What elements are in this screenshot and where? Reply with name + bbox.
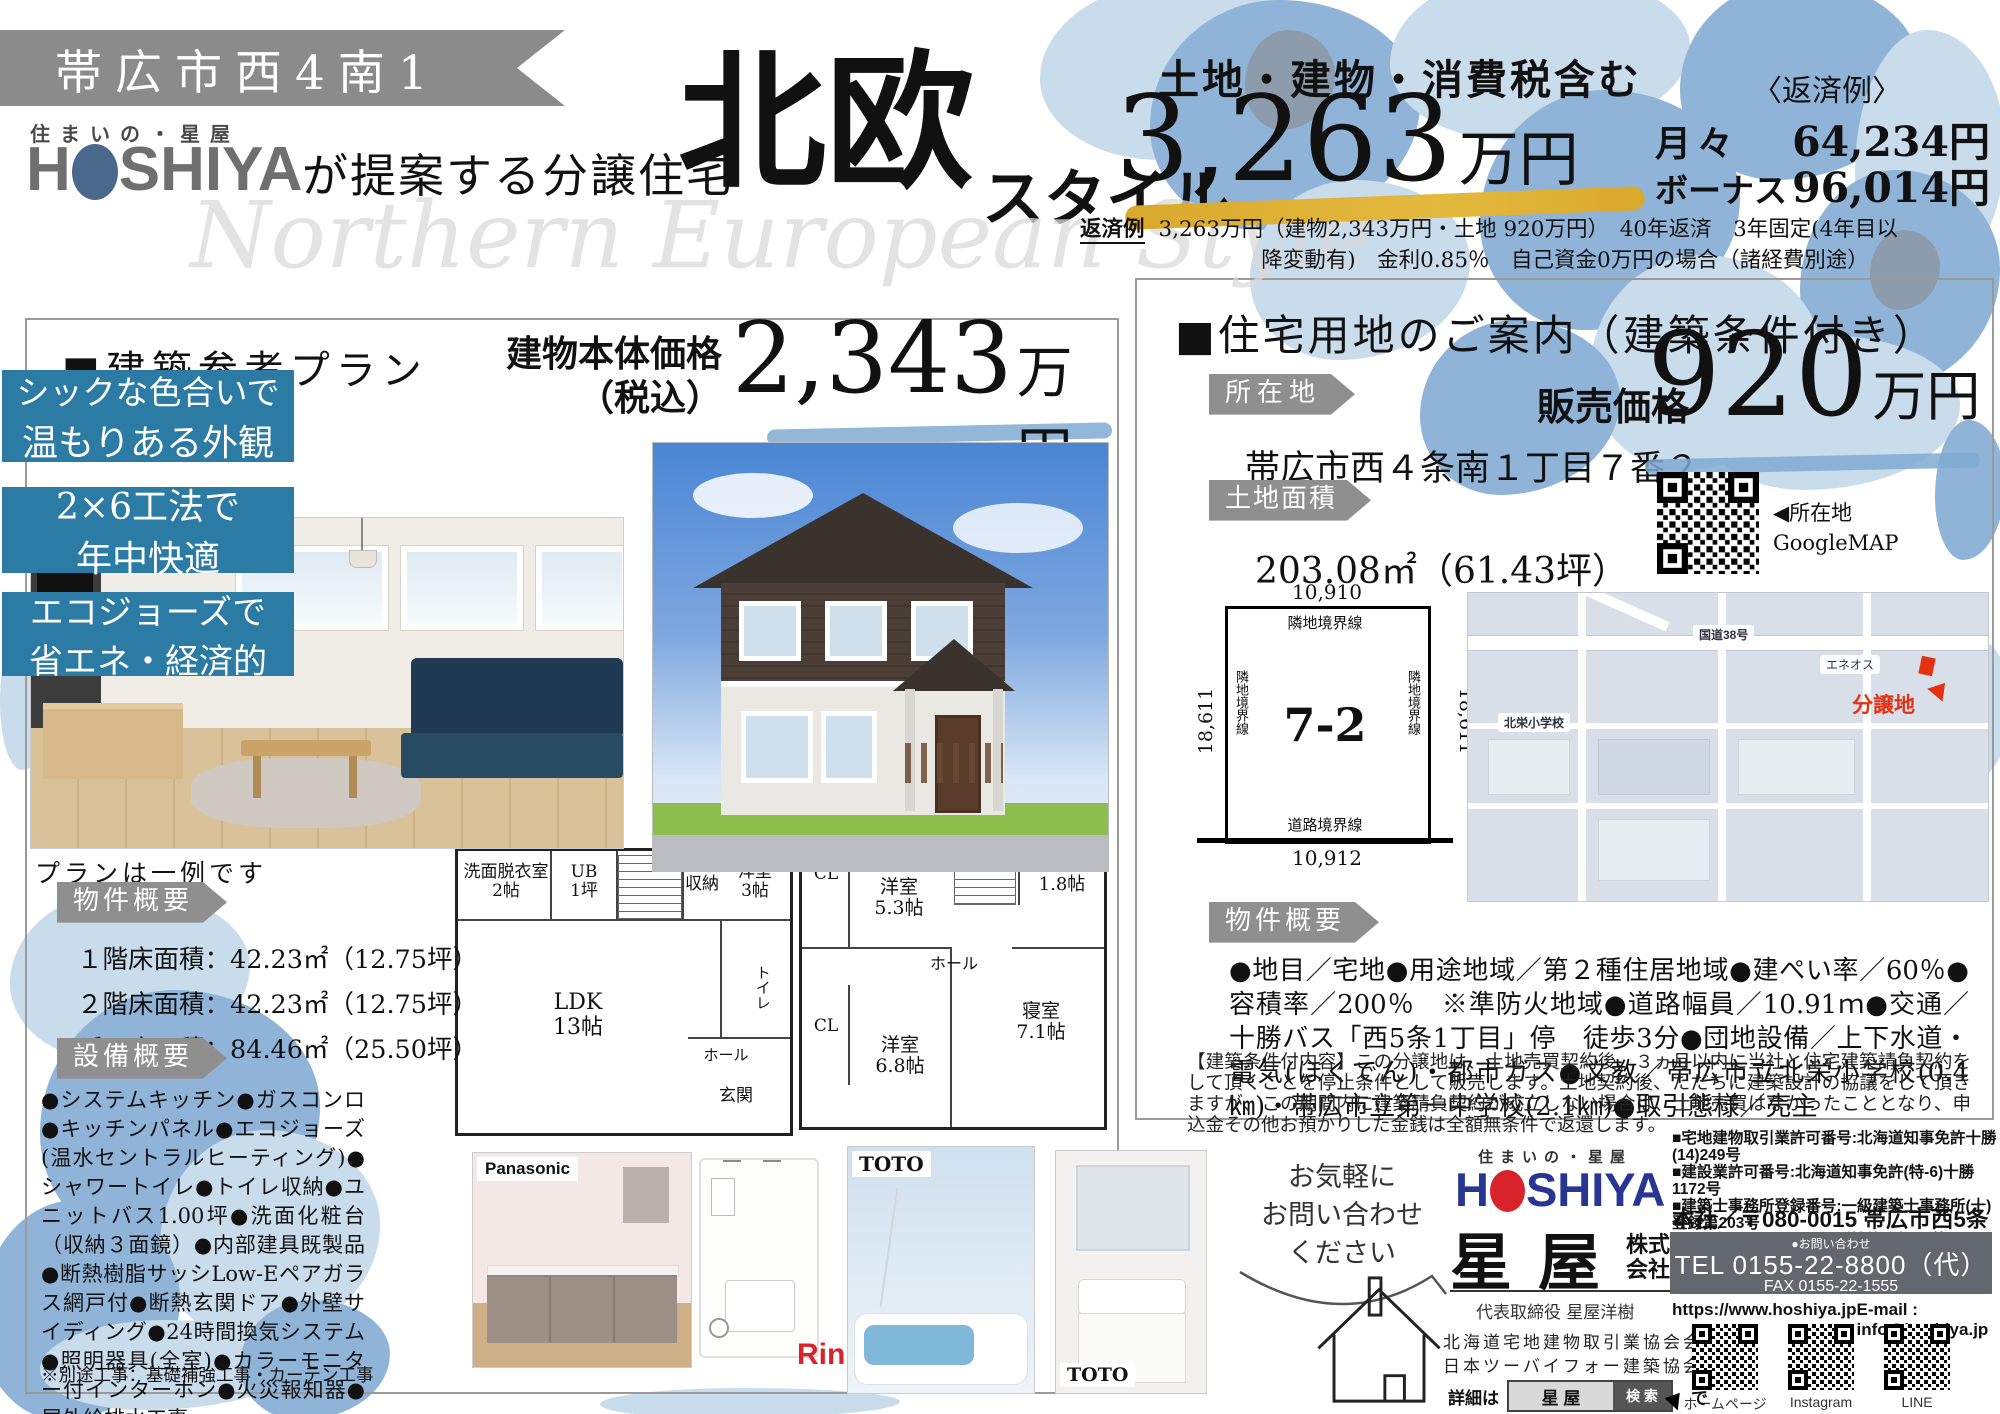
bath-shower-hose <box>880 1187 899 1306</box>
map-site-arrow-icon <box>1927 676 1953 701</box>
interior-table-leg <box>253 756 261 798</box>
lot-left-dim: 18,611 <box>1195 688 1217 754</box>
fp-wall <box>720 919 722 1039</box>
fp-wall <box>950 947 952 1127</box>
house-window <box>741 711 813 783</box>
feature-box-2: 2×6工法で 年中快適 <box>2 487 294 573</box>
map-road <box>1863 593 1871 901</box>
fp-room-label: 玄関 <box>706 1087 766 1106</box>
qr-homepage <box>1692 1324 1758 1390</box>
location-banner-text: 帯広市西4南1 <box>0 34 441 103</box>
floor-area-row: ２階床面積：42.23㎡（12.75坪） <box>77 983 478 1028</box>
style-title-main: 北欧 <box>678 48 974 196</box>
footer-logo-o-icon <box>1490 1170 1525 1212</box>
interior-pendant-shade <box>349 550 377 568</box>
boiler-hatch <box>725 1280 795 1332</box>
plan-panel: ■建築参考プラン 建物本体価格 （税込） 2,343 万円 シックな色合いで 温… <box>25 318 1119 1394</box>
interior-sofa <box>411 658 623 738</box>
fp-room-label: 洋室5.3帖 <box>854 877 944 920</box>
company-rule <box>1450 1290 1675 1292</box>
footer-logo-rest: SHIYA <box>1526 1162 1665 1217</box>
kitchen-cabinets <box>487 1275 677 1343</box>
license-line: ■宅地建物取引業許可番号:北海道知事免許十勝(14)249号 <box>1672 1130 2000 1164</box>
lot-number: 7-2 <box>1225 698 1425 752</box>
bonus-value: 96,014円 <box>1792 154 1990 214</box>
area-map: 国道38号 エネオス 北栄小学校 分譲地 <box>1467 592 1989 902</box>
lot-top-label: 隣地境界線 <box>1225 612 1425 633</box>
bath-brand-label: TOTO <box>852 1151 931 1177</box>
house-window <box>821 711 877 783</box>
hoshiya-logo-o-icon <box>72 144 118 200</box>
lot-road-label: 道路境界線 <box>1225 814 1425 835</box>
fp-wall <box>688 1037 790 1039</box>
cloud <box>693 473 813 518</box>
interior-table-leg <box>349 756 357 798</box>
feature-box-1: シックな色合いで 温もりある外観 <box>2 370 294 462</box>
company-name-row: 星屋 株式 会社 <box>1450 1212 1670 1302</box>
license-line: ■建設業許可番号:北海道知事免許(特-6)十勝1172号 <box>1672 1164 2000 1198</box>
search-bar: 星 屋 検 索 <box>1507 1380 1673 1412</box>
interior-table <box>241 740 371 756</box>
fp-room-label: トイレ <box>754 947 771 1027</box>
lot-road-line <box>1197 838 1453 843</box>
floorplan-1f: 洗面脱衣室2帖 UB1坪 収納 洋室3帖 LDK13帖 トイレ ホール 玄関 <box>455 848 793 1136</box>
sale-price-value: 920 <box>1647 308 1868 443</box>
qr-label-instagram: Instagram <box>1776 1394 1866 1410</box>
equipment-label: 設備概要 <box>57 1038 227 1079</box>
contact-label: ●お問い合わせ <box>1670 1232 1992 1252</box>
boiler-pipe <box>763 1158 781 1162</box>
building-conditions-text: 【建築条件付内容】この分譲地は、土地売買契約後、３ヵ月以内に当社と住宅建築請負契… <box>1187 1052 1971 1136</box>
fp-wall <box>1012 947 1104 949</box>
interior-sideboard <box>43 703 183 779</box>
bonus-row: ボーナス 96,014円 <box>1655 154 1990 214</box>
porch-railing <box>905 743 1003 783</box>
vanity-mirror <box>1076 1165 1190 1251</box>
exterior-driveway <box>653 835 1108 871</box>
map-route-label: 国道38号 <box>1693 625 1754 644</box>
land-outline-label: 物件概要 <box>1209 902 1379 943</box>
contact-bubble: お気軽に お問い合わせ ください <box>1242 1158 1442 1272</box>
total-price: 3,263 万円 <box>1115 78 1579 202</box>
footer-hoshiya-logo: HSHIYA <box>1455 1162 1665 1217</box>
boiler-panel <box>711 1178 735 1216</box>
cloud <box>953 503 1083 553</box>
vanity-basin <box>1078 1279 1186 1315</box>
map-road <box>1578 593 1586 901</box>
company-suffix: 株式 会社 <box>1626 1232 1670 1282</box>
kitchen-brand-label: Panasonic <box>477 1157 578 1181</box>
vanity-brand-label: TOTO <box>1060 1363 1135 1387</box>
map-qr-caption: ◀所在地 GoogleMAP <box>1773 498 1898 558</box>
qr-instagram <box>1788 1324 1854 1390</box>
repayment-example-title: 〈返済例〉 <box>1752 66 1902 110</box>
fineprint-label: 返済例 <box>1080 217 1145 244</box>
house-outline-icon <box>1310 1274 1448 1406</box>
map-block <box>1598 819 1710 881</box>
footer-logo-h: H <box>1455 1162 1489 1217</box>
fp-wall <box>802 947 952 949</box>
interior-pendant-lamp <box>361 518 363 552</box>
total-price-unit: 万円 <box>1459 111 1579 198</box>
hoshiya-logo-h: H <box>26 134 71 205</box>
kitchen-photo: Panasonic <box>472 1152 692 1368</box>
bath-water <box>864 1325 974 1365</box>
fp-wall <box>848 985 850 1085</box>
search-prefix: 詳細は <box>1448 1384 1499 1409</box>
company-ceo: 代表取締役 星屋洋樹 <box>1476 1298 1634 1323</box>
interior-sofa-seat <box>401 733 623 778</box>
fp-room-label: CL <box>804 1017 848 1036</box>
map-gas-label: エネオス <box>1820 655 1880 674</box>
tel-number: TEL 0155-22-8800（代） <box>1670 1252 1992 1278</box>
fp-room-label: LDK13帖 <box>518 991 638 1040</box>
fp-room-label: ホール <box>894 955 1014 973</box>
map-school-label: 北栄小学校 <box>1498 713 1570 732</box>
search-button: 検 索 <box>1613 1382 1671 1410</box>
lot-right-label: 隣地境界線 <box>1403 670 1422 735</box>
map-block <box>1738 739 1855 795</box>
fp-wall <box>458 919 790 921</box>
house-window <box>739 601 801 661</box>
fp-room-label: 寝室7.1帖 <box>998 1001 1084 1044</box>
fineprint-line1: 返済例3,263万円（建物2,343万円・土地 920万円） 40年返済 3年固… <box>1080 214 1990 245</box>
total-price-value: 3,263 <box>1115 78 1453 202</box>
interior-window <box>536 546 624 630</box>
search-row: 詳細は 星 屋 検 索 で <box>1448 1380 1708 1412</box>
fp-room-label: 洗面脱衣室2帖 <box>460 863 552 901</box>
fp-room-label: 収納 <box>682 875 722 894</box>
building-price-label: 建物本体価格 （税込） <box>502 332 722 420</box>
map-qr-code <box>1657 472 1759 574</box>
qr-label-line: LINE <box>1872 1394 1962 1410</box>
sale-price: 920 万円 <box>1647 308 1980 443</box>
repayment-fineprint: 返済例3,263万円（建物2,343万円・土地 920万円） 40年返済 3年固… <box>1080 214 1990 276</box>
fp-room-label: UB1坪 <box>554 863 614 901</box>
flyer-page: 帯広市西4南1 住まいの・星屋 HSHIYA が提案する分譲住宅 北欧 スタイル… <box>0 0 2000 1414</box>
map-site-marker <box>1918 656 1935 677</box>
tel-box: ●お問い合わせ TEL 0155-22-8800（代） FAX 0155-22-… <box>1670 1232 1992 1294</box>
lot-diagram: 10,910 隣地境界線 18,611 隣地境界線 7-2 隣地境界線 18,6… <box>1215 580 1439 896</box>
map-road <box>1467 592 1670 631</box>
boiler-dial <box>709 1318 729 1338</box>
boiler-pipe <box>723 1158 741 1162</box>
equipment-note: ※別途工事：基礎補強工事・カーテン工事 <box>41 1362 374 1387</box>
floor-area-row: １階床面積：42.23㎡（12.75坪） <box>77 938 478 983</box>
building-price-value: 2,343 <box>732 302 1013 416</box>
location-banner: 帯広市西4南1 <box>0 30 565 106</box>
house-window <box>825 601 887 661</box>
search-term: 星 屋 <box>1509 1382 1613 1410</box>
interior-window <box>401 546 523 630</box>
fax-number: FAX 0155-22-1555 <box>1670 1278 1992 1295</box>
boiler-photo <box>699 1158 819 1358</box>
map-block <box>1598 739 1710 795</box>
company-name: 星屋 <box>1450 1212 1626 1302</box>
fineprint-line2: 降変動有) 金利0.85％ 自己資金0万円の場合（諸経費別途） <box>1080 245 1990 276</box>
fp-room-label: ホール <box>690 1047 762 1064</box>
land-area-label: 土地面積 <box>1209 480 1371 521</box>
fp-room-label: 洋室6.8帖 <box>852 1035 948 1078</box>
exterior-render-photo <box>652 442 1109 872</box>
outline-label: 物件概要 <box>57 882 227 923</box>
lot-top-dim: 10,910 <box>1215 580 1439 604</box>
bonus-label: ボーナス <box>1655 164 1787 212</box>
lot-bottom-dim: 10,912 <box>1215 846 1439 870</box>
location-label: 所在地 <box>1209 374 1355 415</box>
land-panel: ■住宅用地のご案内（建築条件付き） 所在地 帯広市西４条南１丁目７番２ 販売価格… <box>1135 278 1994 1120</box>
interior-rug <box>191 758 421 828</box>
floorplan-2f: CL 洋室5.3帖 WCL1.8帖 ホール CL 洋室6.8帖 寝室7.1帖 <box>799 832 1107 1130</box>
bath-photo: TOTO <box>847 1146 1035 1394</box>
kitchen-hood <box>623 1167 669 1223</box>
sale-price-unit: 万円 <box>1872 352 1980 431</box>
vanity-photo: TOTO <box>1055 1150 1207 1394</box>
map-site-label: 分譲地 <box>1852 689 1915 719</box>
map-road <box>1468 803 1988 809</box>
map-block <box>1488 739 1570 795</box>
feature-box-3: エコジョーズで 省エネ・経済的 <box>2 592 294 676</box>
qr-line <box>1884 1324 1950 1390</box>
